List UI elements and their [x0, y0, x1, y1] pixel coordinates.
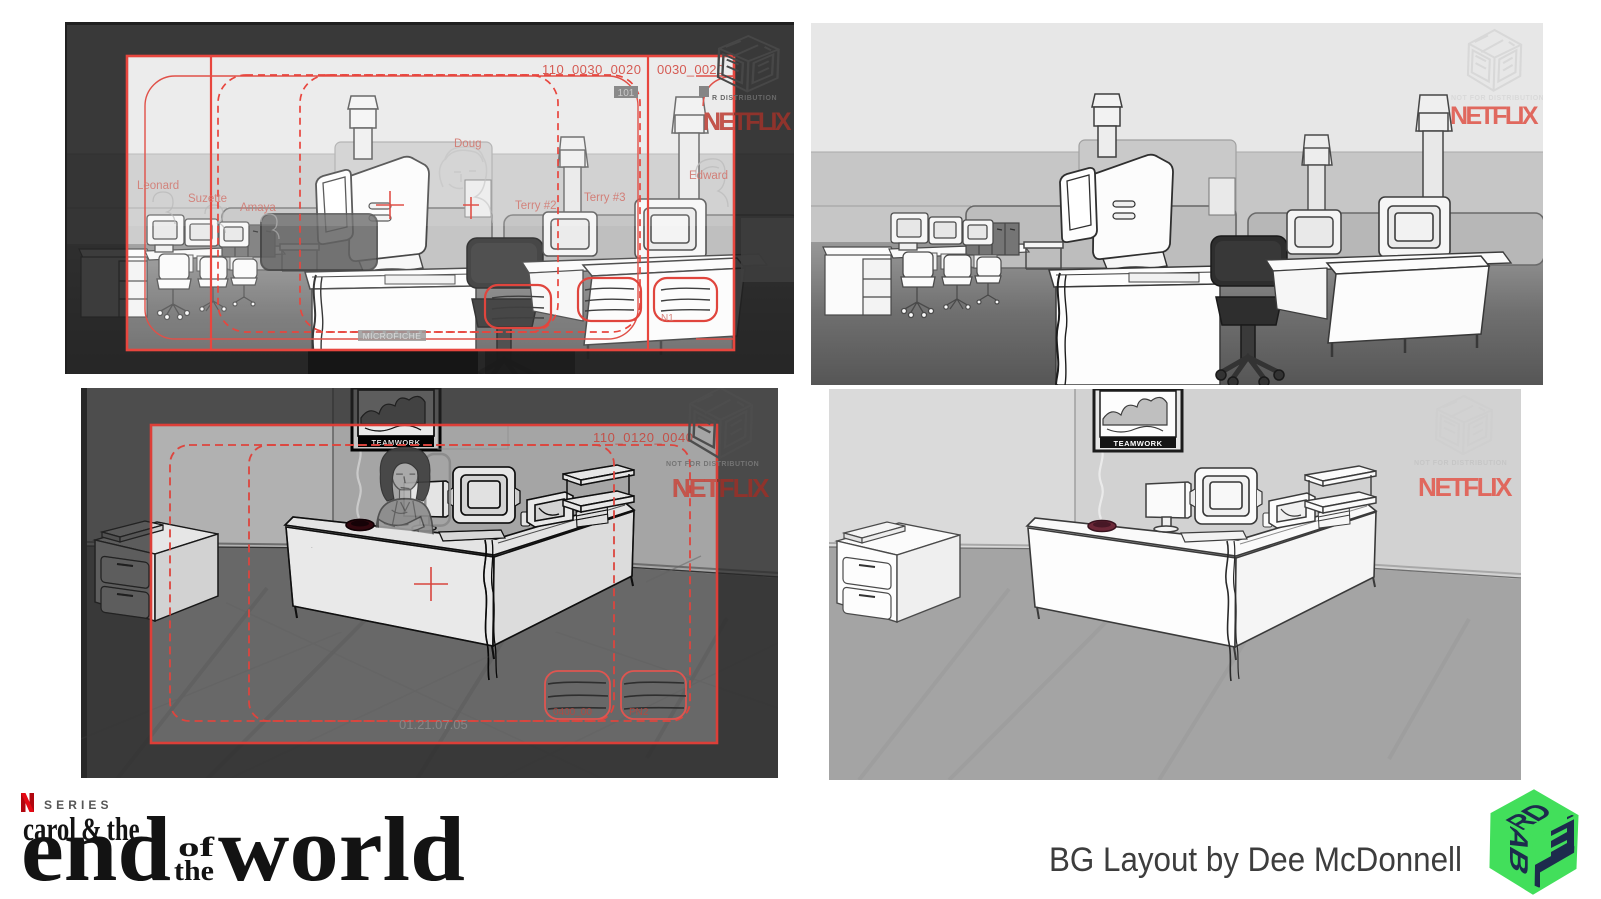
svg-text:NETFLIX: NETFLIX	[1450, 102, 1539, 130]
svg-text:110_0120_0040: 110_0120_0040	[593, 430, 693, 445]
svg-text:01.21.07.05: 01.21.07.05	[399, 717, 468, 732]
svg-text:0400_00: 0400_00	[553, 707, 592, 718]
svg-text:PN2: PN2	[629, 707, 649, 718]
svg-text:NOT FOR DISTRIBUTION: NOT FOR DISTRIBUTION	[1451, 95, 1544, 102]
svg-text:world: world	[218, 798, 465, 899]
svg-text:NOT FOR DISTRIBUTION: NOT FOR DISTRIBUTION	[666, 461, 759, 468]
svg-text:MICROFICHE: MICROFICHE	[363, 331, 422, 341]
svg-text:R DISTRIBUTION: R DISTRIBUTION	[712, 95, 777, 102]
svg-text:Doug: Doug	[454, 138, 482, 150]
svg-text:N1: N1	[661, 313, 674, 324]
svg-text:Leonard: Leonard	[137, 180, 179, 192]
svg-text:BG Layout by Dee McDonnell: BG Layout by Dee McDonnell	[1049, 841, 1462, 879]
svg-text:0030_0020: 0030_0020	[657, 62, 724, 77]
svg-text:101: 101	[618, 88, 635, 99]
svg-text:Terry #3: Terry #3	[584, 192, 626, 204]
svg-text:end: end	[21, 798, 171, 899]
svg-text:NETFLIX: NETFLIX	[1418, 472, 1513, 502]
svg-text:Amaya: Amaya	[240, 202, 276, 214]
svg-text:Terry #2: Terry #2	[515, 200, 557, 212]
svg-text:the: the	[174, 855, 214, 887]
svg-text:NOT FOR DISTRIBUTION: NOT FOR DISTRIBUTION	[1414, 460, 1507, 467]
svg-text:Edward: Edward	[689, 170, 728, 182]
svg-text:Suzette: Suzette	[188, 193, 227, 205]
svg-text:110_0030_0020: 110_0030_0020	[542, 62, 641, 77]
